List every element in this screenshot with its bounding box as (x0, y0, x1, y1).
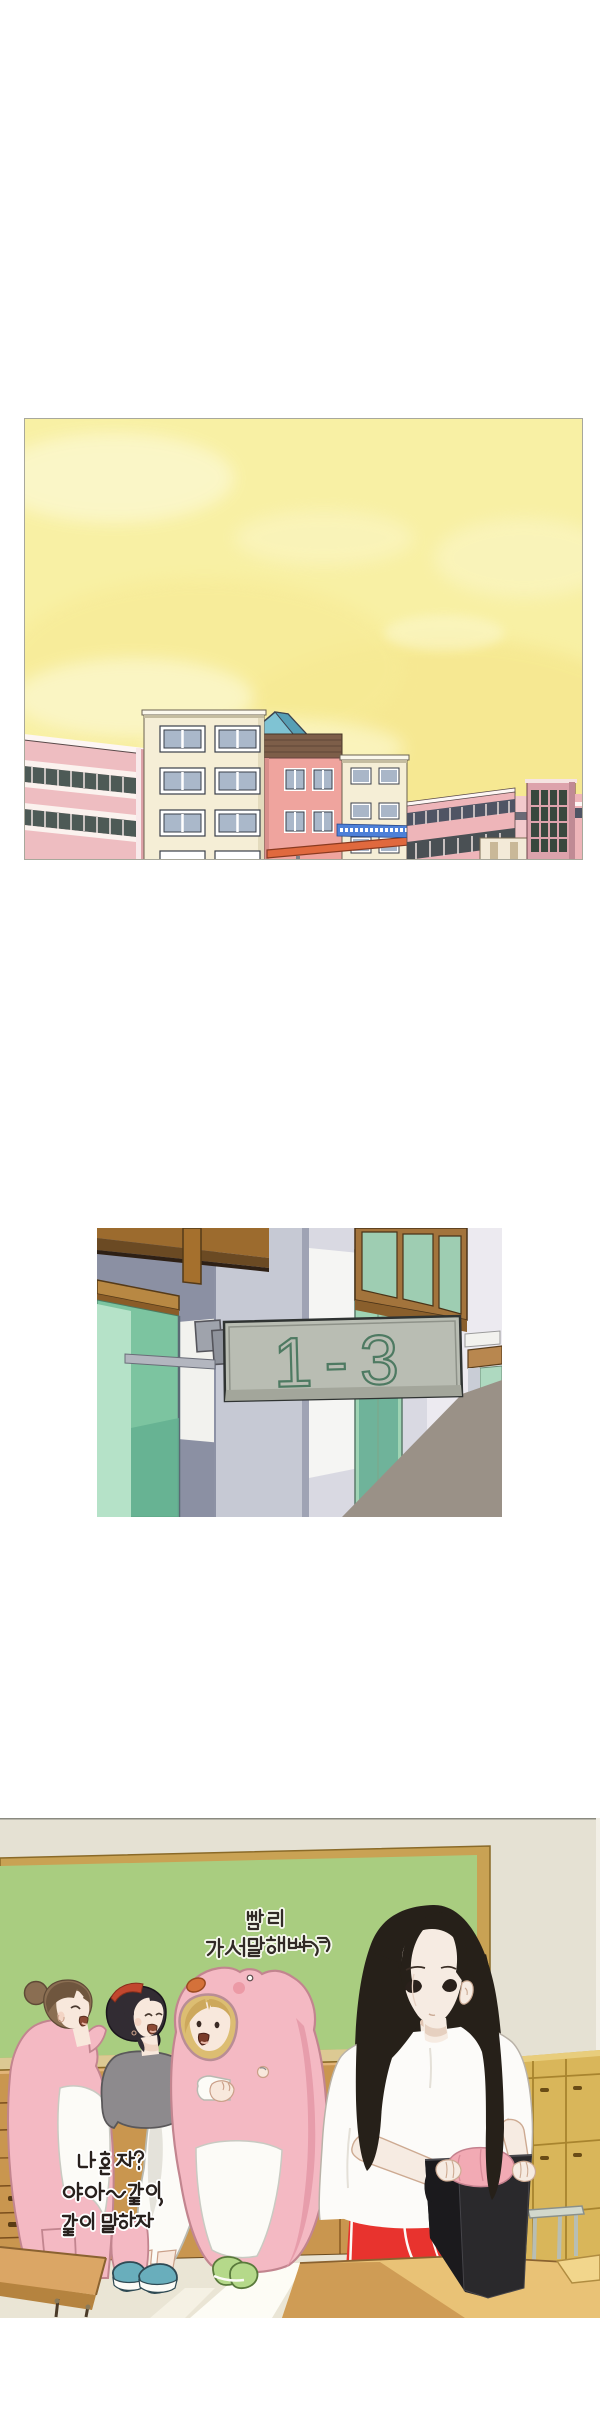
svg-text:1-3: 1-3 (272, 1320, 411, 1402)
